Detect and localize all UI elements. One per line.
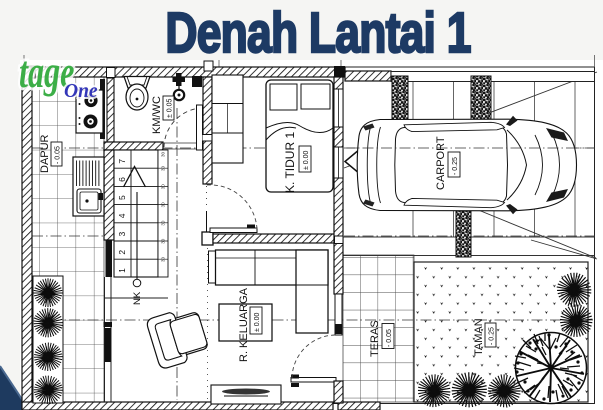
svg-text:One: One	[64, 81, 98, 102]
svg-text:5: 5	[117, 195, 127, 200]
svg-text:- 0.05: - 0.05	[55, 146, 62, 164]
svg-text:K. TIDUR 1: K. TIDUR 1	[283, 132, 297, 193]
svg-text:1: 1	[117, 268, 127, 273]
svg-text:± 0.05: ± 0.05	[167, 98, 174, 118]
svg-text:NK: NK	[132, 291, 143, 305]
svg-text:30: 30	[161, 184, 166, 190]
svg-text:TAMAN: TAMAN	[473, 318, 485, 356]
svg-text:30: 30	[161, 202, 166, 208]
svg-text:- 0.25: - 0.25	[489, 327, 496, 345]
svg-text:30: 30	[161, 220, 166, 226]
svg-text:CARPORT: CARPORT	[435, 136, 447, 190]
svg-text:30: 30	[161, 165, 166, 171]
svg-text:- 0.05: - 0.05	[386, 329, 393, 347]
svg-text:30: 30	[161, 238, 166, 244]
svg-text:DAPUR: DAPUR	[39, 134, 51, 173]
svg-text:30: 30	[161, 256, 166, 262]
svg-text:2: 2	[117, 250, 127, 255]
svg-text:± 0.00: ± 0.00	[303, 150, 310, 170]
svg-text:Denah Lantai 1: Denah Lantai 1	[165, 1, 470, 65]
svg-text:± 0.00: ± 0.00	[254, 312, 261, 332]
svg-text:4: 4	[117, 213, 127, 218]
svg-text:KM/WC: KM/WC	[151, 96, 163, 134]
svg-text:R. KELUARGA: R. KELUARGA	[238, 287, 250, 362]
svg-text:3: 3	[117, 231, 127, 236]
svg-text:6: 6	[117, 177, 127, 182]
svg-text:TERAS: TERAS	[369, 320, 381, 357]
svg-text:- 0.25: - 0.25	[452, 157, 459, 175]
svg-text:7: 7	[117, 159, 127, 164]
svg-text:30: 30	[161, 151, 166, 157]
